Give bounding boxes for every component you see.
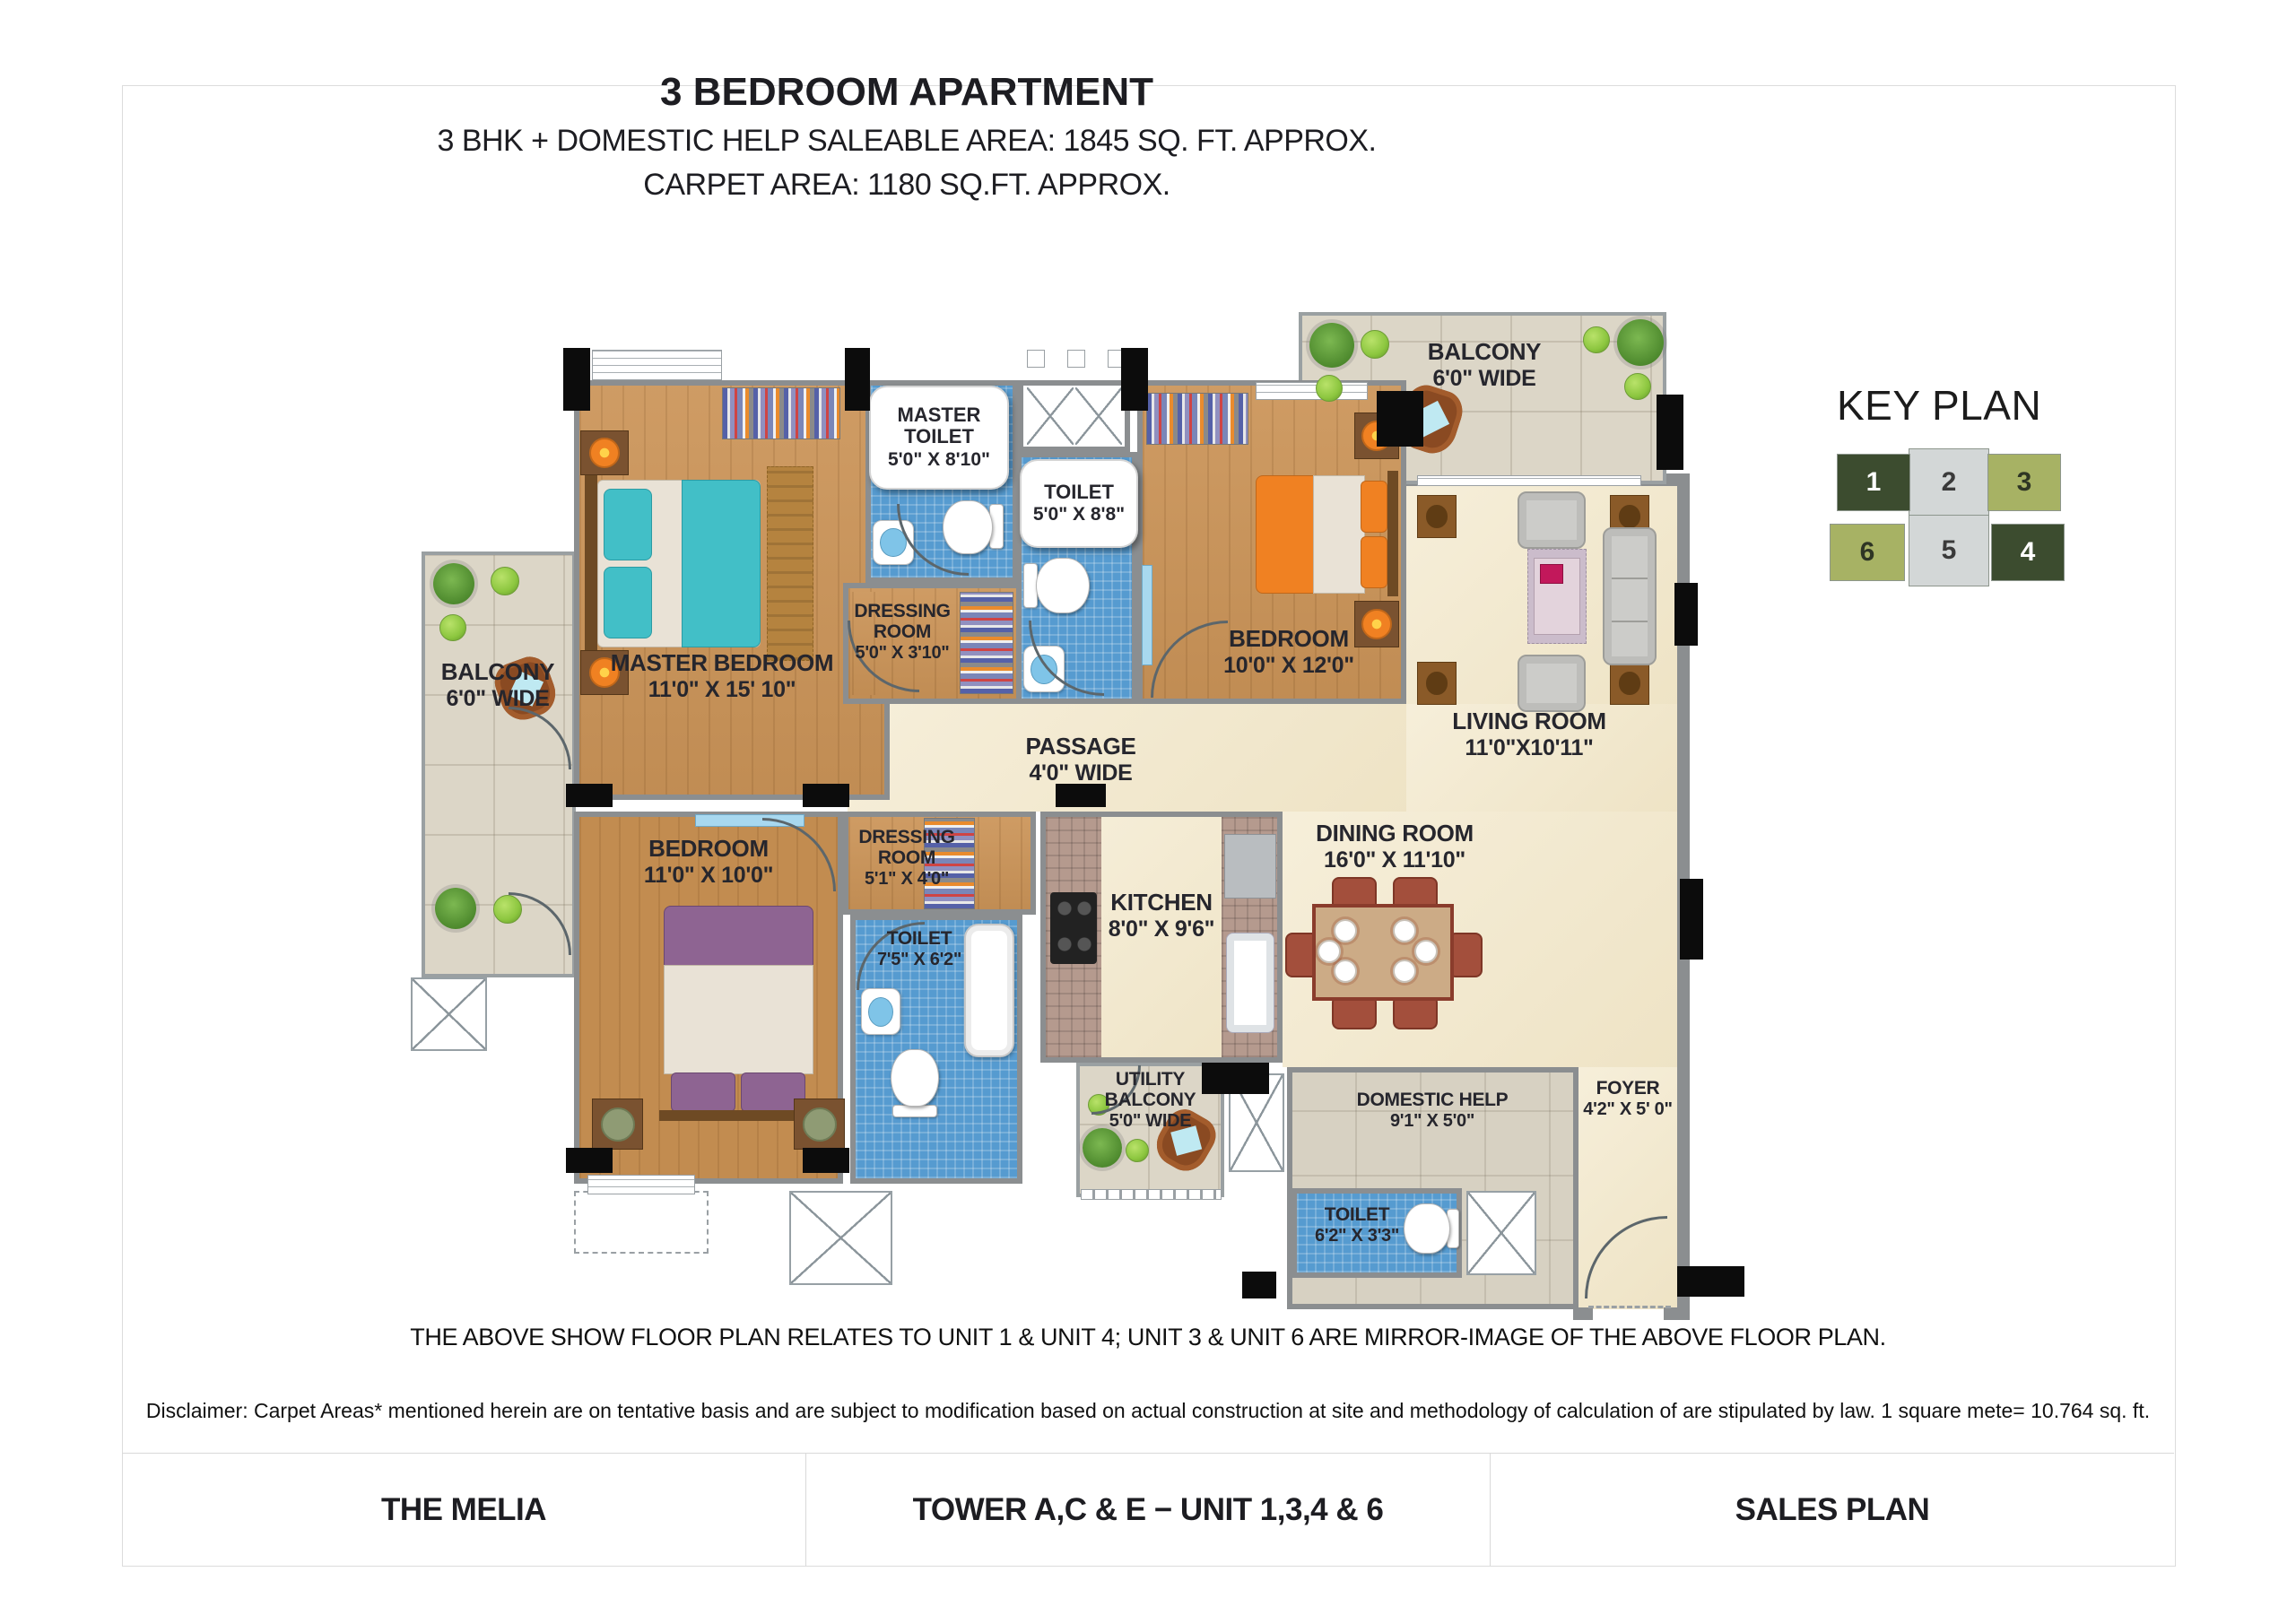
column — [1121, 348, 1148, 411]
column — [1680, 879, 1703, 960]
hob-icon — [1050, 892, 1097, 964]
floor-plan: MASTER TOILET 5'0" X 8'10" TOILET 5'0" X… — [408, 305, 1762, 1336]
sofa — [1603, 527, 1657, 665]
basin-bowl — [868, 997, 893, 1027]
keyplan-diagram: 2 5 1 3 6 4 — [1830, 447, 2063, 590]
nightstand — [580, 430, 629, 475]
column — [563, 348, 590, 411]
entry-dashed-threshold — [1588, 1306, 1671, 1308]
fan-icon — [601, 1107, 635, 1142]
room-name: BEDROOM — [1181, 626, 1396, 652]
room-dims: 5'0" WIDE — [1085, 1111, 1215, 1131]
shaft-x-bottom — [789, 1191, 892, 1285]
column — [1657, 395, 1683, 470]
room-dims: 11'0" X 15' 10" — [596, 678, 848, 703]
label-toilet-3: TOILET 7'5" X 6'2" — [861, 928, 978, 969]
service-dash-box — [574, 1191, 709, 1254]
column — [566, 1148, 613, 1173]
page-subtitle-saleable: 3 BHK + DOMESTIC HELP SALEABLE AREA: 184… — [122, 124, 1692, 159]
label-dressing-1: DRESSING ROOM 5'0" X 3'10" — [848, 601, 957, 663]
bedroom3-bed — [664, 965, 813, 1074]
keyplan-unit-4: 4 — [1991, 524, 2065, 581]
keyplan-unit-6: 6 — [1830, 524, 1905, 581]
table-decor — [1540, 564, 1563, 584]
lamp-icon — [589, 438, 620, 468]
footer-tower-unit: TOWER A,C & E − UNIT 1,3,4 & 6 — [805, 1454, 1490, 1566]
plate-icon — [1393, 919, 1416, 942]
room-dims: 4'0" WIDE — [1000, 761, 1161, 786]
plate-icon — [1393, 960, 1416, 983]
master-bed-pillow — [604, 489, 652, 560]
label-utility-balcony: UTILITY BALCONY 5'0" WIDE — [1085, 1069, 1215, 1131]
room-dims: 6'0" WIDE — [430, 687, 565, 712]
window-sill-bedroom2 — [1142, 565, 1152, 665]
label-living: LIVING ROOM 11'0"X10'11" — [1422, 708, 1637, 760]
plate-icon — [1334, 960, 1357, 983]
label-balcony-left: BALCONY 6'0" WIDE — [430, 659, 565, 711]
plate-icon — [1318, 940, 1341, 963]
window-living-top — [1417, 475, 1641, 486]
room-name: LIVING ROOM — [1422, 708, 1637, 734]
wall-foyer-stub-right — [1664, 1307, 1683, 1320]
label-dining: DINING ROOM 16'0" X 11'10" — [1296, 821, 1493, 873]
table-dot — [1619, 672, 1639, 694]
plate-icon — [1334, 919, 1357, 942]
page-title: 3 BEDROOM APARTMENT — [122, 70, 1692, 115]
side-table — [1417, 495, 1457, 538]
room-name: BALCONY — [430, 659, 565, 685]
label-passage: PASSAGE 4'0" WIDE — [1000, 734, 1161, 786]
room-name: UTILITY BALCONY — [1085, 1069, 1215, 1110]
plant-icon — [1126, 1139, 1149, 1162]
wardrobe-x-icon — [1075, 387, 1122, 445]
room-dims: 16'0" X 11'10" — [1296, 848, 1493, 873]
nightstand — [794, 1099, 845, 1150]
room-name: DRESSING ROOM — [848, 601, 957, 642]
room-dims: 7'5" X 6'2" — [861, 950, 978, 969]
room-name: DRESSING ROOM — [849, 827, 964, 868]
room-name: MASTER TOILET — [871, 404, 1007, 447]
room-name: PASSAGE — [1000, 734, 1161, 760]
plant-icon — [1583, 326, 1610, 353]
plant-bush-icon — [1309, 323, 1354, 368]
table-dot — [1426, 505, 1447, 527]
coffee-table — [1534, 558, 1580, 635]
plant-bush-icon — [1083, 1128, 1122, 1168]
room-dims: 11'0"X10'11" — [1422, 736, 1637, 761]
plant-bush-icon — [435, 888, 476, 929]
rug-tan-master — [767, 466, 813, 661]
plant-bush-icon — [433, 563, 474, 604]
vent-square — [1027, 350, 1045, 368]
keyplan-unit-5: 5 — [1909, 515, 1989, 586]
plant-icon — [439, 614, 466, 641]
column — [1242, 1272, 1276, 1298]
keyplan-unit-2: 2 — [1909, 448, 1989, 517]
fan-icon — [803, 1107, 837, 1142]
label-toilet-4: TOILET 6'2" X 3'3" — [1299, 1204, 1415, 1246]
bedroom3-blanket — [664, 906, 813, 967]
side-table — [1610, 662, 1649, 705]
room-name: KITCHEN — [1103, 890, 1220, 916]
toilet2-tub-label: TOILET 5'0" X 8'8" — [1020, 459, 1138, 548]
footer-plan-type: SALES PLAN — [1490, 1454, 2174, 1566]
master-bed-blanket — [682, 480, 761, 647]
bedroom2-pillow — [1361, 481, 1387, 533]
room-name: TOILET — [1022, 482, 1136, 503]
wall-foyer-stub-left — [1573, 1307, 1593, 1320]
room-dims: 11'0" X 10'0" — [601, 864, 816, 889]
label-bedroom-3: BEDROOM 11'0" X 10'0" — [601, 836, 816, 888]
room-name: DOMESTIC HELP — [1325, 1090, 1540, 1110]
room-dims: 5'0" X 3'10" — [848, 643, 957, 663]
sink-icon — [1226, 933, 1274, 1033]
column — [1674, 583, 1698, 646]
footer-project-name: THE MELIA — [122, 1454, 805, 1566]
page-subtitle-carpet: CARPET AREA: 1180 SQ.FT. APPROX. — [122, 168, 1692, 203]
window-bedroom3-bottom — [587, 1175, 695, 1194]
room-name: TOILET — [1299, 1204, 1415, 1225]
bedroom3-headboard — [659, 1110, 816, 1121]
disclaimer: Disclaimer: Carpet Areas* mentioned here… — [122, 1399, 2174, 1423]
vent-square — [1067, 350, 1085, 368]
closet-top — [1018, 380, 1130, 452]
column — [803, 1148, 849, 1173]
bedroom2-bed — [1313, 475, 1365, 594]
room-dims: 6'0" WIDE — [1395, 367, 1574, 392]
column — [566, 784, 613, 807]
toilet-tank-icon — [892, 1105, 937, 1117]
master-bed-pillow — [604, 567, 652, 638]
room-dims: 6'2" X 3'3" — [1299, 1226, 1415, 1246]
label-master-bedroom: MASTER BEDROOM 11'0" X 15' 10" — [596, 650, 848, 702]
footer-bar: THE MELIA TOWER A,C & E − UNIT 1,3,4 & 6… — [122, 1453, 2174, 1566]
heading: 3 BEDROOM APARTMENT 3 BHK + DOMESTIC HEL… — [122, 70, 1692, 203]
bedroom2-blanket — [1256, 475, 1315, 594]
toilet-wc-icon — [891, 1049, 939, 1107]
rug-bedroom2 — [1146, 393, 1248, 445]
plate-icon — [1414, 940, 1438, 963]
table-dot — [1426, 672, 1447, 694]
room-dims: 5'0" X 8'10" — [871, 449, 1007, 471]
room-name: FOYER — [1572, 1078, 1683, 1099]
room-name: TOILET — [861, 928, 978, 949]
master-bed-headboard — [585, 475, 597, 650]
room-dims: 9'1" X 5'0" — [1325, 1111, 1540, 1131]
bedroom3-pillow — [671, 1073, 735, 1112]
room-dims: 8'0" X 9'6" — [1103, 917, 1220, 942]
room-dims: 4'2" X 5' 0" — [1572, 1099, 1683, 1119]
room-name: DINING ROOM — [1296, 821, 1493, 847]
room-dims: 5'0" X 8'8" — [1022, 504, 1136, 525]
mirror-note: THE ABOVE SHOW FLOOR PLAN RELATES TO UNI… — [122, 1324, 2174, 1351]
nightstand — [592, 1099, 643, 1150]
plant-icon — [491, 567, 519, 595]
bedroom2-headboard — [1387, 471, 1398, 596]
label-dressing-2: DRESSING ROOM 5'1" X 4'0" — [849, 827, 964, 889]
column — [845, 348, 870, 411]
label-kitchen: KITCHEN 8'0" X 9'6" — [1103, 890, 1220, 942]
armchair — [1518, 655, 1586, 712]
utility-railing — [1081, 1189, 1222, 1200]
column — [1677, 1266, 1744, 1297]
label-domestic-help: DOMESTIC HELP 9'1" X 5'0" — [1325, 1090, 1540, 1131]
wardrobe-dressing1 — [960, 592, 1013, 694]
plant-icon — [1624, 373, 1651, 400]
label-foyer: FOYER 4'2" X 5' 0" — [1572, 1078, 1683, 1119]
plant-icon — [1361, 330, 1389, 359]
fridge-icon — [1224, 834, 1276, 899]
keyplan-title: KEY PLAN — [1837, 381, 2041, 430]
keyplan-unit-1: 1 — [1837, 454, 1910, 511]
rug-master — [722, 387, 840, 439]
toilet-wc-icon — [1036, 558, 1090, 613]
room-name: BEDROOM — [601, 836, 816, 862]
window-bedroom2-top — [1256, 382, 1368, 400]
room-name: MASTER BEDROOM — [596, 650, 848, 676]
label-bedroom-2: BEDROOM 10'0" X 12'0" — [1181, 626, 1396, 678]
shaft-x-left — [411, 977, 487, 1051]
room-dims: 5'1" X 4'0" — [849, 869, 964, 889]
column — [803, 784, 849, 807]
room-dims: 10'0" X 12'0" — [1181, 654, 1396, 679]
bedroom2-pillow — [1361, 536, 1387, 588]
plant-icon — [1316, 375, 1343, 402]
wardrobe-x-icon — [1027, 387, 1074, 445]
plant-bush-icon — [1617, 319, 1664, 366]
side-table — [1417, 662, 1457, 705]
table-dot — [1619, 505, 1639, 527]
window-master-top — [592, 350, 722, 380]
basin-icon — [861, 988, 900, 1035]
label-balcony-top: BALCONY 6'0" WIDE — [1395, 339, 1574, 391]
closet-x-domestic — [1466, 1191, 1536, 1275]
keyplan-unit-3: 3 — [1987, 454, 2061, 511]
master-toilet-tub-label: MASTER TOILET 5'0" X 8'10" — [869, 386, 1009, 490]
column — [1056, 784, 1106, 807]
room-name: BALCONY — [1395, 339, 1574, 365]
column — [1377, 391, 1423, 447]
armchair — [1518, 491, 1586, 549]
